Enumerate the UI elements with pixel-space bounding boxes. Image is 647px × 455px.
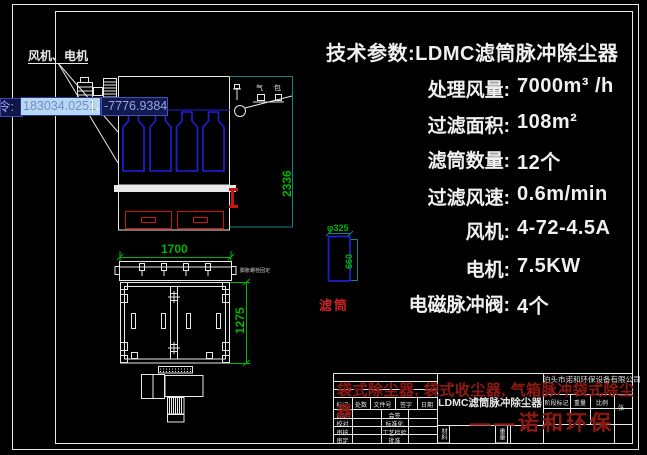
spec-row: 滤筒数量: 12个 <box>326 146 626 170</box>
spec-value: 108m² <box>517 111 577 134</box>
spec-label: 过滤面积: <box>326 111 510 138</box>
signature-row: 审定 批准 <box>333 436 437 445</box>
spec-label: 电机: <box>326 255 510 282</box>
spec-title: 技术参数:LDMC滤筒脉冲除尘器 <box>326 44 618 64</box>
dim-1275: 1275 <box>234 307 246 334</box>
side-bracket <box>229 188 238 208</box>
cad-application-canvas: 风机、电机 气 包 2336 1700 1275 膨胀螺栓固定 φ325 660… <box>0 0 647 455</box>
watermark-brand: ——诺和环保 <box>470 407 614 437</box>
sig-label: 批准 <box>381 436 408 445</box>
spec-value: 7000m³ /h <box>517 75 614 98</box>
sig-label: 审定 <box>333 436 352 445</box>
spec-value: 4个 <box>517 290 549 319</box>
fan-motor-callout: 风机、电机 <box>28 50 88 64</box>
spec-row: 处理风量: 7000m³ /h <box>326 75 626 99</box>
text-cursor <box>92 100 93 113</box>
flange-band <box>114 185 236 192</box>
spec-value: 0.6m/min <box>517 183 608 206</box>
dim-2336: 2336 <box>281 170 293 197</box>
filter-cartridges <box>123 112 224 171</box>
coordinate-separator: , <box>96 101 99 112</box>
plan-note: 膨胀螺栓固定 <box>240 269 270 274</box>
spec-label: 滤筒数量: <box>326 146 510 173</box>
spec-label: 风机: <box>326 217 510 244</box>
air-tank-char-2: 包 <box>274 85 281 92</box>
plan-view <box>115 251 250 366</box>
divider-bolts <box>168 291 180 354</box>
dim-1700: 1700 <box>161 243 188 255</box>
spec-row: 电机: 7.5KW <box>326 255 626 279</box>
air-tank-char-1: 气 <box>256 85 263 92</box>
command-prompt-text: 令: <box>0 99 14 116</box>
spec-label: 处理风量: <box>326 75 510 102</box>
spec-value: 4-72-4.5A <box>517 217 610 240</box>
door-slots <box>132 314 221 329</box>
spec-row: 风机: 4-72-4.5A <box>326 217 626 241</box>
spec-row: 电磁脉冲阀: 4个 <box>326 290 626 314</box>
spec-row: 过滤面积: 108m² <box>326 111 626 135</box>
dynamic-input-x-field[interactable]: 183034.0251 <box>20 97 101 116</box>
spec-label: 过滤风速: <box>326 183 510 210</box>
bolt-symbols-top <box>140 264 211 277</box>
spec-value: 7.5KW <box>517 255 581 278</box>
height-dim-lines <box>230 77 293 228</box>
spec-value: 12个 <box>517 146 561 175</box>
spec-label: 电磁脉冲阀: <box>326 290 510 317</box>
spec-row: 过滤风速: 0.6m/min <box>326 183 626 207</box>
hopper-doors <box>126 212 224 229</box>
material-label: 材料 <box>440 428 446 440</box>
dynamic-input-y-field[interactable]: -7776.9384 <box>101 97 168 116</box>
fan-motor-bottom-view <box>142 367 204 423</box>
